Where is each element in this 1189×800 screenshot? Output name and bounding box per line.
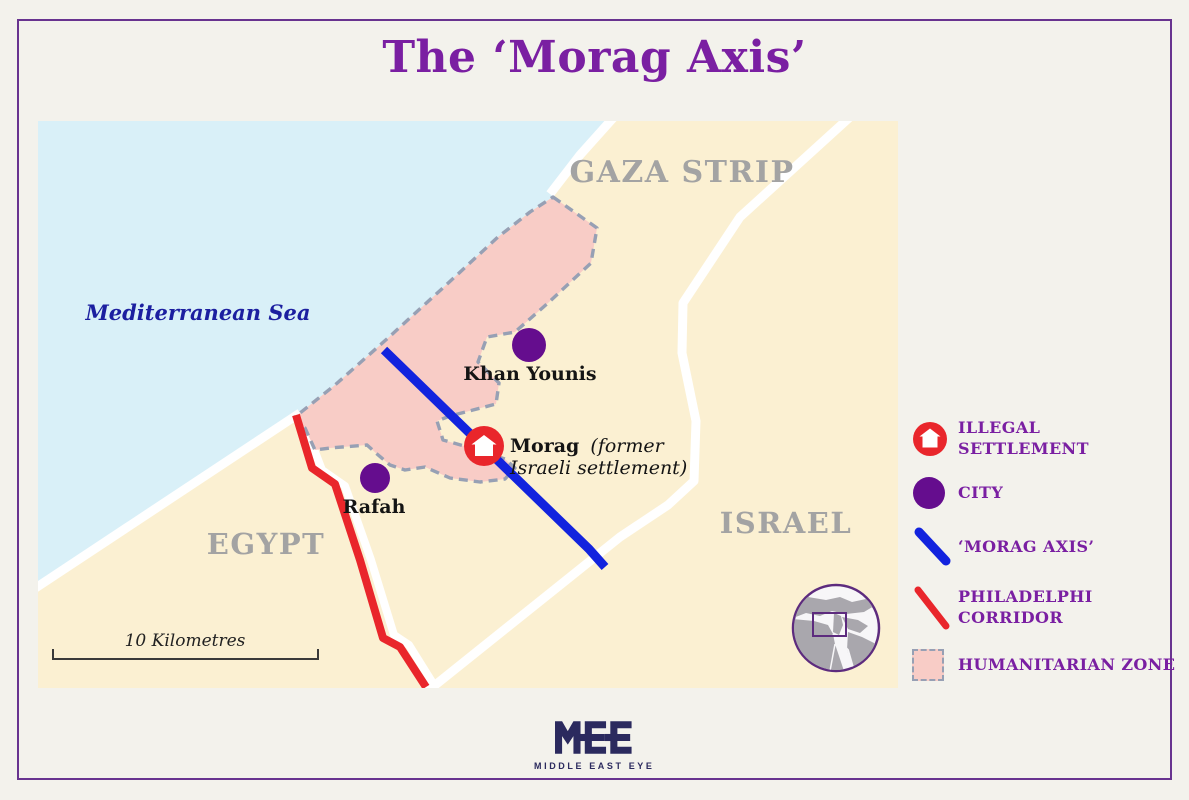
- map-svg: Khan Younis Rafah Morag (former Israeli …: [38, 121, 898, 688]
- mee-logo: MIDDLE EAST EYE: [534, 721, 654, 771]
- legend-label-line: ‘MORAG AXIS’: [958, 537, 1094, 558]
- gaza-strip-label: GAZA STRIP: [569, 155, 794, 190]
- legend-item-illegal-settlement: ILLEGAL SETTLEMENT: [912, 418, 1089, 460]
- legend-label-line: HUMANITARIAN ZONE: [958, 655, 1175, 676]
- legend-item-humanitarian-zone: HUMANITARIAN ZONE: [912, 649, 1175, 681]
- legend-label-line: CORRIDOR: [958, 608, 1093, 629]
- rafah-dot: [360, 463, 390, 493]
- legend-label-line: PHILADELPHI: [958, 587, 1093, 608]
- morag-label-italic1: (former: [590, 435, 665, 457]
- israel-label: ISRAEL: [720, 506, 853, 540]
- legend-label-line: ILLEGAL: [958, 418, 1089, 439]
- map: Khan Younis Rafah Morag (former Israeli …: [38, 121, 898, 688]
- legend-label-line: SETTLEMENT: [958, 439, 1089, 460]
- city-icon: [912, 476, 946, 510]
- legend-label-line: CITY: [958, 483, 1003, 504]
- morag-axis-icon: [912, 526, 954, 568]
- mediterranean-sea-label: Mediterranean Sea: [84, 300, 310, 325]
- morag-label-italic2: Israeli settlement): [509, 457, 687, 479]
- mee-logo-icon: [555, 721, 633, 754]
- scale-label: 10 Kilometres: [125, 631, 246, 651]
- mee-wordmark: MIDDLE EAST EYE: [534, 761, 654, 771]
- illegal-settlement-icon: [912, 421, 948, 457]
- locator-inset: [793, 585, 879, 671]
- legend-item-city: CITY: [912, 476, 1003, 510]
- khan-younis-label: Khan Younis: [463, 363, 596, 385]
- legend-item-philadelphi-corridor: PHILADELPHI CORRIDOR: [912, 584, 1093, 632]
- legend-item-morag-axis: ‘MORAG AXIS’: [912, 526, 1094, 568]
- morag-settlement-marker: [464, 426, 504, 466]
- egypt-label: EGYPT: [207, 527, 325, 561]
- philadelphi-corridor-icon: [912, 584, 954, 632]
- page-title: The ‘Morag Axis’: [0, 32, 1189, 83]
- humanitarian-zone-icon: [912, 649, 944, 681]
- khan-younis-dot: [512, 328, 546, 362]
- rafah-label: Rafah: [343, 496, 406, 518]
- morag-label-bold: Morag: [510, 435, 579, 457]
